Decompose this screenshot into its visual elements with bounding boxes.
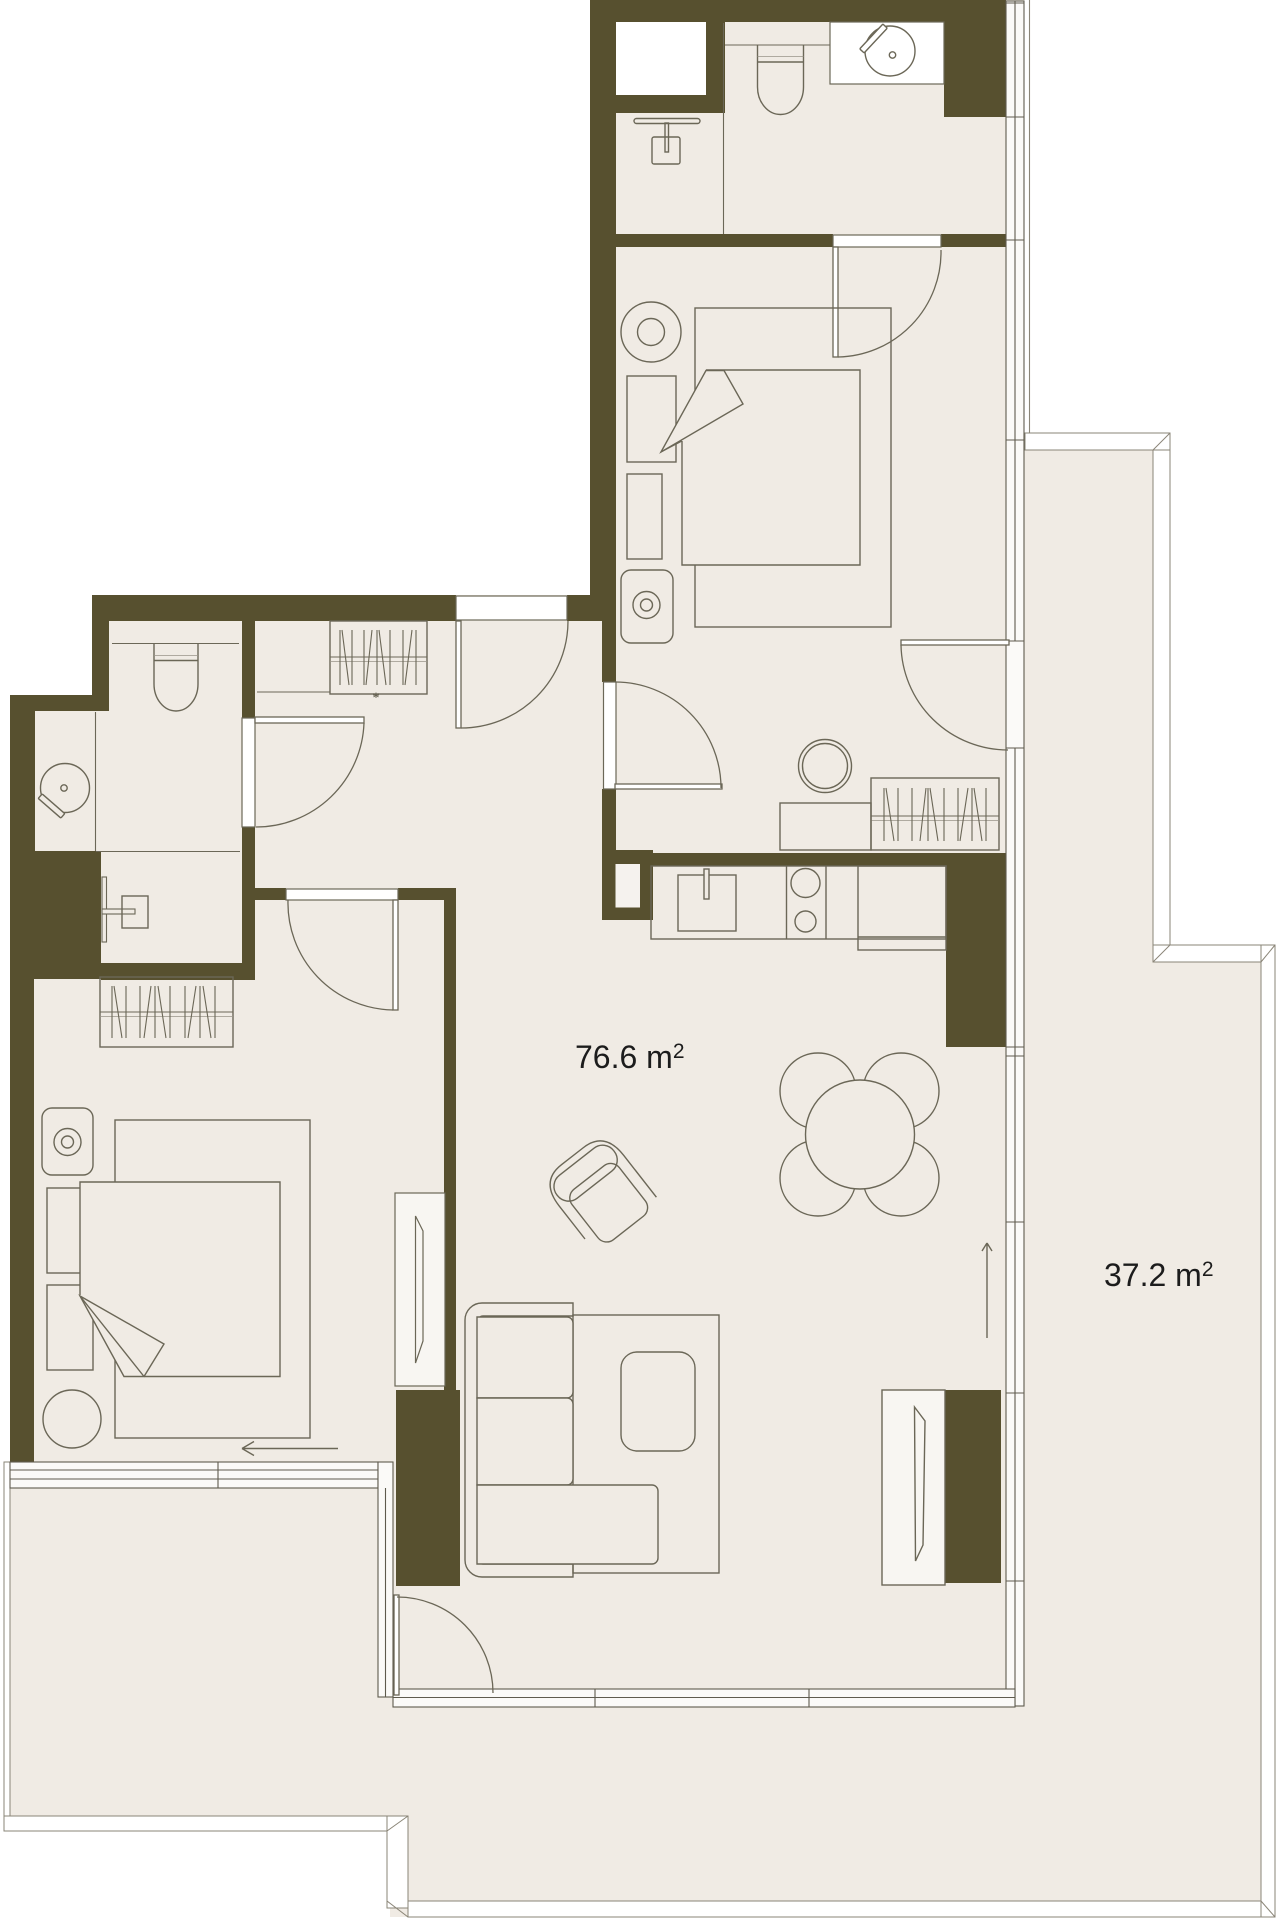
svg-text:37.2 m2: 37.2 m2 <box>1104 1257 1214 1293</box>
svg-text:76.6 m2: 76.6 m2 <box>575 1039 685 1075</box>
